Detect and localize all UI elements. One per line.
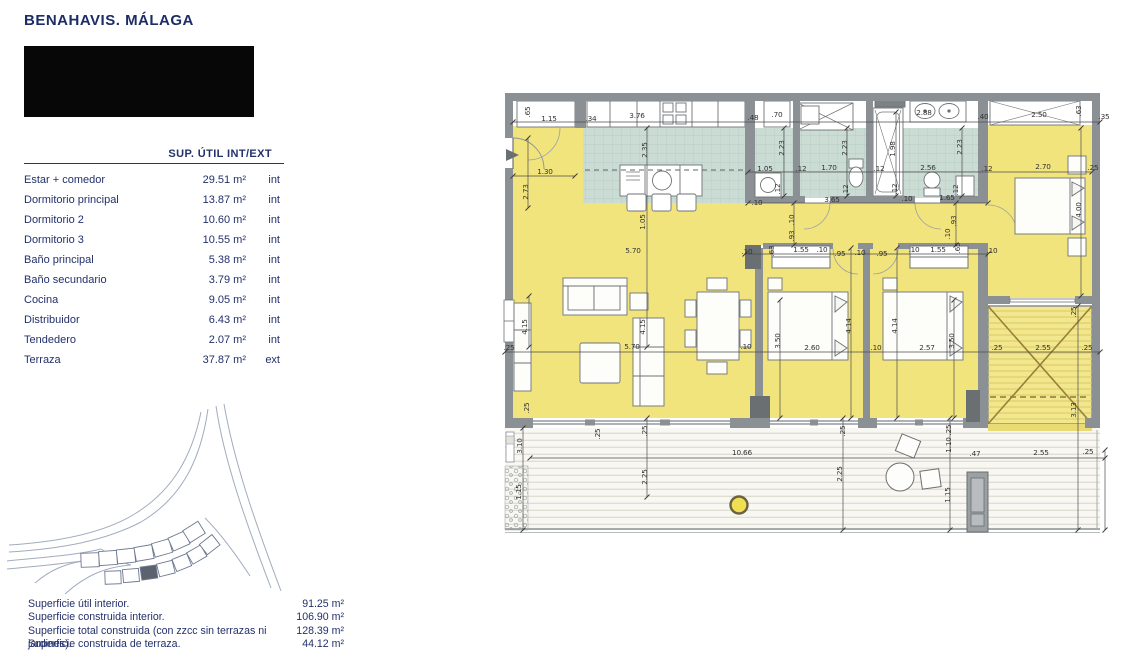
room-area: 10.55 m² <box>182 234 246 246</box>
room-label: Tendedero <box>24 334 182 346</box>
dimension-label: .12 <box>773 183 782 194</box>
dimension-label: 4.14 <box>844 318 853 334</box>
dimension-label: 2.25 <box>835 466 844 481</box>
toilet <box>849 159 863 187</box>
room-area: 13.87 m² <box>182 194 246 206</box>
dimension-label: 2.60 <box>804 343 820 352</box>
dimension-label: .25 <box>1081 343 1092 352</box>
room-type: int <box>246 274 284 286</box>
dimension-label: 2.55 <box>1033 448 1048 457</box>
terrace-column <box>731 497 748 514</box>
table-row: Dormitorio principal13.87 m²int <box>24 190 284 210</box>
dimension-label: 5.70 <box>624 342 640 351</box>
redacted-block <box>24 46 254 117</box>
dimension-label: 1.55 <box>930 245 945 254</box>
dimension-label: .34 <box>585 114 597 123</box>
table-row: Cocina9.05 m²int <box>24 290 284 310</box>
dimension-label: 2.23 <box>955 139 964 155</box>
dimension-label: .70 <box>771 110 783 119</box>
dimension-label: .25 <box>503 343 514 352</box>
room-label: Baño secundario <box>24 274 182 286</box>
dimension-label: 1.15 <box>943 487 952 502</box>
dimension-label: .10 <box>740 342 752 351</box>
dimension-label: 5.70 <box>625 246 641 255</box>
dimension-label: .25 <box>838 425 847 436</box>
summary-label: Superficie construida interior. <box>28 611 278 624</box>
dimension-label: 1.05 <box>638 214 647 229</box>
dimension-label: 1.55 <box>793 245 808 254</box>
dimension-label: 1.30 <box>537 167 553 176</box>
dimension-label: 2.70 <box>1035 162 1051 171</box>
dimension-label: .10 <box>787 214 796 226</box>
room-area: 5.38 m² <box>182 254 246 266</box>
table-row: Dormitorio 210.60 m²int <box>24 210 284 230</box>
table-row: Dormitorio 310.55 m²int <box>24 230 284 250</box>
dimension-label: 1.15 <box>541 114 556 123</box>
dimension-label: .95 <box>834 249 845 258</box>
dimension-label: 2.50 <box>1031 110 1047 119</box>
table-row: Tendedero2.07 m²int <box>24 330 284 350</box>
room-area-table: SUP. ÚTIL INT/EXT Estar + comedor29.51 m… <box>24 148 284 370</box>
table-row: Distribuidor6.43 m²int <box>24 310 284 330</box>
dimension-label: .10 <box>816 245 828 254</box>
dimension-label: .10 <box>751 198 763 207</box>
site-roads <box>7 404 281 594</box>
summary-label: Superficie construida de terraza. <box>28 638 278 651</box>
room-area: 10.60 m² <box>182 214 246 226</box>
dimension-label: 3.76 <box>629 111 645 120</box>
summary-label: Superficie útil interior. <box>28 598 278 611</box>
terrace <box>505 428 1100 533</box>
stool <box>652 194 671 211</box>
dimension-label: 1.65 <box>939 193 954 202</box>
dimension-label: 4.15 <box>520 319 529 334</box>
dimension-label: .47 <box>969 449 981 458</box>
room-type: int <box>246 254 284 266</box>
dimension-label: .25 <box>593 428 602 439</box>
room-area: 37.87 m² <box>182 354 246 366</box>
dimension-label: .93 <box>787 230 796 242</box>
dimension-label: 2.57 <box>919 343 935 352</box>
room-type: int <box>246 214 284 226</box>
summary-label: Superficie total construida (con zzcc si… <box>28 625 278 638</box>
dimension-label: .10 <box>870 343 882 352</box>
room-area: 9.05 m² <box>182 294 246 306</box>
summary-value: 91.25 m² <box>278 598 344 611</box>
toilet <box>924 172 940 196</box>
dimension-label: .12 <box>873 164 884 173</box>
area-table-rows: Estar + comedor29.51 m²int Dormitorio pr… <box>24 170 284 370</box>
dimension-label: .65 <box>523 106 532 117</box>
dimension-label: .25 <box>640 425 649 436</box>
room-type: int <box>246 334 284 346</box>
dimension-label: 3.50 <box>947 333 956 349</box>
terrace-stool <box>920 469 941 489</box>
stool <box>627 194 646 211</box>
dimension-label: 10.66 <box>732 448 752 457</box>
dimension-label: .25 <box>991 343 1002 352</box>
dimension-label: 4.14 <box>890 318 899 334</box>
dimension-label: 2.88 <box>916 108 932 117</box>
dimension-label: .10 <box>854 248 866 257</box>
sofa <box>563 278 627 315</box>
dimension-label: .12 <box>890 183 899 194</box>
armchair <box>580 343 620 383</box>
room-label: Dormitorio 3 <box>24 234 182 246</box>
dimension-label: .63 <box>1074 105 1083 117</box>
plan-sheet: BENAHAVIS. MÁLAGA SUP. ÚTIL INT/EXT Esta… <box>0 0 1142 665</box>
dimension-label: .12 <box>795 164 806 173</box>
dimension-label: 3.50 <box>773 333 782 349</box>
dimension-label: .65 <box>953 242 962 253</box>
summary-row: Superficie total construida (con zzcc si… <box>28 625 344 638</box>
summary-row: Superficie construida interior.106.90 m² <box>28 611 344 624</box>
dimension-label: .10 <box>901 194 913 203</box>
room-label: Distribuidor <box>24 314 182 326</box>
summary-row: Superficie útil interior.91.25 m² <box>28 598 344 611</box>
side-table <box>630 293 648 310</box>
room-area: 3.79 m² <box>182 274 246 286</box>
dimension-label: .25 <box>522 402 531 413</box>
site-buildings <box>81 521 220 584</box>
dimension-label: 3.10 <box>515 438 524 454</box>
dimension-label: 2.35 <box>640 142 649 157</box>
page-title: BENAHAVIS. MÁLAGA <box>24 12 194 29</box>
dimension-label: 3.13 <box>1069 402 1078 418</box>
dimension-label: .10 <box>943 228 952 240</box>
dimension-label: .35 <box>1098 112 1109 121</box>
summary-value: 128.39 m² <box>278 625 344 638</box>
dimension-label: .95 <box>876 249 887 258</box>
stool <box>677 194 696 211</box>
dimension-label: 4.00 <box>1074 202 1083 218</box>
dimension-label: .12 <box>841 184 850 195</box>
room-type: int <box>246 194 284 206</box>
dimension-label: 1.05 <box>757 164 772 173</box>
room-type: int <box>246 294 284 306</box>
dimension-label: .48 <box>747 113 759 122</box>
summary-row: Superficie construida de terraza.44.12 m… <box>28 638 344 651</box>
room-area: 6.43 m² <box>182 314 246 326</box>
dimension-label: .25 <box>944 424 953 435</box>
dimension-label: 2.25 <box>640 469 649 484</box>
table-row: Terraza37.87 m²ext <box>24 350 284 370</box>
dimension-label: .10 <box>741 247 753 256</box>
wash-basin <box>801 106 819 124</box>
site-plan-sketch <box>5 398 285 598</box>
room-type: int <box>246 314 284 326</box>
dimension-label: .25 <box>1087 163 1098 172</box>
summary-value: 44.12 m² <box>278 638 344 651</box>
room-type: ext <box>246 354 284 366</box>
dimension-label: .63 <box>767 245 776 257</box>
dimension-label: 1.10 <box>944 437 953 453</box>
highlighted-building <box>140 565 158 580</box>
dimension-label: .25 <box>1082 447 1093 456</box>
dimension-label: 2.55 <box>1035 343 1050 352</box>
room-label: Cocina <box>24 294 182 306</box>
table-row: Baño secundario3.79 m²int <box>24 270 284 290</box>
dimension-label: .10 <box>908 245 920 254</box>
terrace-table <box>886 463 914 491</box>
kitchen-island <box>620 165 702 211</box>
dimension-label: .93 <box>949 215 958 227</box>
room-area: 29.51 m² <box>182 174 246 186</box>
dimension-label: 1.70 <box>821 163 837 172</box>
room-label: Estar + comedor <box>24 174 182 186</box>
surface-summary: Superficie útil interior.91.25 m² Superf… <box>28 598 344 652</box>
floor-plan: .651.15.343.76.48.702.88.402.50.63.351.3… <box>500 85 1110 545</box>
terrace-planter-column <box>967 472 988 532</box>
room-label: Baño principal <box>24 254 182 266</box>
table-row: Estar + comedor29.51 m²int <box>24 170 284 190</box>
dimension-label: .12 <box>981 164 992 173</box>
shelf <box>875 100 905 107</box>
dimension-label: 2.73 <box>521 184 530 200</box>
dimension-label: 4.15 <box>638 319 647 334</box>
dimension-label: 1.98 <box>888 141 897 157</box>
room-label: Dormitorio 2 <box>24 214 182 226</box>
room-type: int <box>246 234 284 246</box>
dimension-label: .40 <box>977 112 989 121</box>
room-area: 2.07 m² <box>182 334 246 346</box>
dimension-label: 1.15 <box>514 484 523 499</box>
dimension-label: 2.23 <box>840 140 849 156</box>
room-label: Terraza <box>24 354 182 366</box>
room-type: int <box>246 174 284 186</box>
dimension-label: 2.23 <box>777 140 786 156</box>
dimension-label: 2.56 <box>920 163 936 172</box>
area-table-header: SUP. ÚTIL INT/EXT <box>24 148 284 164</box>
room-label: Dormitorio principal <box>24 194 182 206</box>
summary-value: 106.90 m² <box>278 611 344 624</box>
dimension-label: .10 <box>986 246 998 255</box>
dimension-label: 3.65 <box>824 195 839 204</box>
dimension-label: .25 <box>1069 306 1078 317</box>
table-row: Baño principal5.38 m²int <box>24 250 284 270</box>
